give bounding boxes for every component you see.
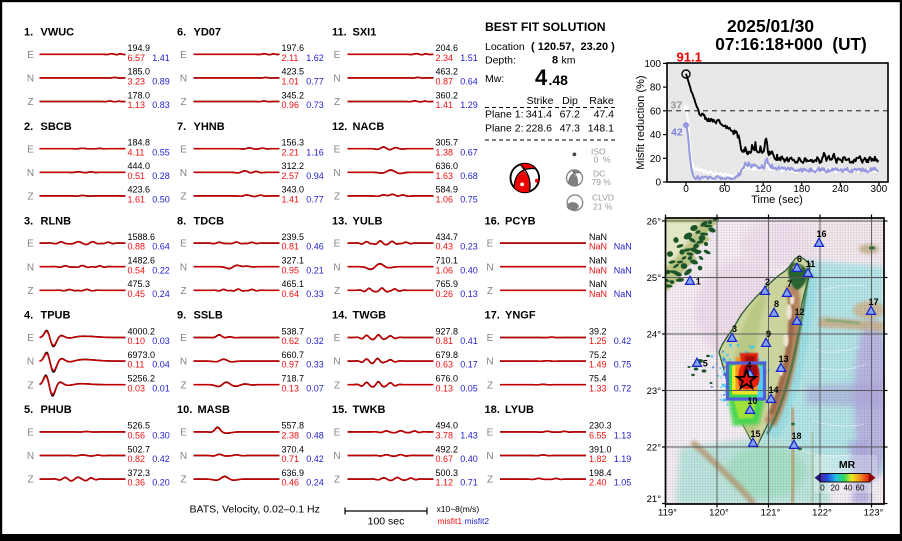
svg-text:E: E — [334, 333, 341, 344]
svg-text:148.1: 148.1 — [588, 123, 614, 135]
svg-text:Rake: Rake — [589, 95, 614, 107]
svg-text:370.4: 370.4 — [282, 444, 305, 454]
svg-text:679.8: 679.8 — [436, 350, 459, 360]
svg-text:0.95: 0.95 — [282, 265, 300, 275]
svg-text:0.03: 0.03 — [128, 383, 146, 393]
svg-text:676.0: 676.0 — [436, 374, 459, 384]
svg-text:Z: Z — [27, 475, 33, 486]
svg-text:0.77: 0.77 — [306, 195, 324, 205]
svg-text:765.9: 765.9 — [436, 279, 459, 289]
svg-text:1.41: 1.41 — [436, 100, 454, 110]
svg-text:80: 80 — [650, 83, 662, 94]
svg-text:0.94: 0.94 — [306, 171, 324, 181]
svg-text:230.3: 230.3 — [589, 421, 612, 431]
svg-text:15: 15 — [750, 429, 760, 439]
svg-text:NaN: NaN — [614, 265, 632, 275]
svg-text:Z: Z — [334, 380, 340, 391]
svg-text:0.13: 0.13 — [460, 289, 478, 299]
svg-text:492.2: 492.2 — [436, 444, 459, 454]
svg-text:Z: Z — [180, 286, 186, 297]
svg-text:22°: 22° — [647, 443, 662, 454]
svg-text:TWKB: TWKB — [353, 404, 386, 416]
svg-text:Strike: Strike — [527, 95, 554, 107]
svg-text:5: 5 — [703, 359, 708, 369]
svg-text:122°: 122° — [812, 508, 832, 519]
svg-text:YULB: YULB — [353, 215, 383, 227]
svg-text:0.24: 0.24 — [306, 478, 324, 488]
svg-text:N: N — [333, 74, 340, 85]
svg-text:204.6: 204.6 — [436, 43, 459, 53]
svg-text:Z: Z — [180, 97, 186, 108]
svg-text:6: 6 — [797, 254, 802, 264]
svg-text:18.: 18. — [485, 404, 500, 416]
svg-text:LYUB: LYUB — [505, 404, 534, 416]
svg-text:500.3: 500.3 — [436, 468, 459, 478]
svg-text:1.61: 1.61 — [128, 195, 146, 205]
svg-text:07:16:18+000 (UT): 07:16:18+000 (UT) — [715, 34, 866, 54]
svg-text:20: 20 — [831, 484, 840, 493]
svg-text:NaN: NaN — [589, 289, 607, 299]
svg-text:197.6: 197.6 — [282, 43, 305, 53]
svg-text:NACB: NACB — [353, 121, 385, 133]
svg-text:18: 18 — [791, 431, 801, 441]
svg-text:0.82: 0.82 — [128, 454, 146, 464]
svg-text:1.29: 1.29 — [460, 100, 478, 110]
svg-text:1.49: 1.49 — [589, 360, 607, 370]
svg-text:100: 100 — [644, 59, 661, 70]
svg-text:24°: 24° — [647, 330, 662, 341]
svg-text:E: E — [487, 239, 494, 250]
svg-text:Plane 2:: Plane 2: — [485, 123, 524, 135]
svg-text:E: E — [27, 144, 34, 155]
svg-text:BEST FIT SOLUTION: BEST FIT SOLUTION — [485, 20, 606, 34]
svg-text:8: 8 — [552, 55, 558, 67]
svg-text:75.2: 75.2 — [589, 350, 607, 360]
svg-text:E: E — [334, 144, 341, 155]
svg-text:16: 16 — [816, 229, 826, 239]
svg-text:1.51: 1.51 — [460, 53, 478, 63]
svg-text:NaN: NaN — [589, 279, 607, 289]
svg-text:42: 42 — [671, 127, 683, 139]
svg-text:40: 40 — [650, 130, 662, 141]
svg-text:343.0: 343.0 — [282, 185, 305, 195]
svg-text:N: N — [27, 451, 34, 462]
svg-text:1.06: 1.06 — [436, 265, 454, 275]
svg-text:2.40: 2.40 — [589, 478, 607, 488]
svg-text:1.16: 1.16 — [306, 147, 324, 157]
svg-text:502.7: 502.7 — [128, 444, 151, 454]
svg-text:0.24: 0.24 — [152, 289, 170, 299]
svg-text:misfit2: misfit2 — [465, 516, 490, 526]
svg-text:3.78: 3.78 — [436, 431, 454, 441]
svg-text:0.81: 0.81 — [436, 336, 454, 346]
svg-text:( 120.57, 23.20 ): ( 120.57, 23.20 ) — [531, 41, 615, 53]
svg-text:0.05: 0.05 — [460, 383, 478, 393]
svg-text:N: N — [333, 168, 340, 179]
svg-text:463.2: 463.2 — [436, 67, 459, 77]
svg-text:N: N — [333, 262, 340, 273]
svg-text:2.: 2. — [24, 121, 33, 133]
svg-text:E: E — [27, 50, 34, 61]
svg-text:4.11: 4.11 — [128, 147, 145, 157]
svg-text:475.3: 475.3 — [128, 279, 151, 289]
svg-text:7: 7 — [787, 279, 792, 289]
svg-text:BATS, Velocity, 0.02–0.1 Hz: BATS, Velocity, 0.02–0.1 Hz — [190, 504, 320, 516]
svg-text:MR: MR — [839, 459, 856, 471]
svg-text:8: 8 — [774, 299, 779, 309]
svg-text:0.45: 0.45 — [128, 289, 146, 299]
svg-text:9: 9 — [766, 329, 771, 339]
svg-text:0.10: 0.10 — [128, 336, 146, 346]
svg-text:0.54: 0.54 — [128, 265, 146, 275]
svg-text:228.6: 228.6 — [526, 123, 552, 135]
svg-text:423.6: 423.6 — [128, 185, 151, 195]
svg-text:E: E — [180, 428, 187, 439]
svg-text:SSLB: SSLB — [194, 310, 223, 322]
svg-text:1: 1 — [696, 277, 701, 287]
svg-text:345.2: 345.2 — [282, 90, 305, 100]
svg-text:N: N — [486, 451, 493, 462]
svg-text:Time (sec): Time (sec) — [751, 194, 803, 206]
svg-text:0.22: 0.22 — [152, 265, 170, 275]
svg-text:0.30: 0.30 — [152, 431, 170, 441]
svg-text:4: 4 — [746, 361, 751, 371]
svg-text:20: 20 — [650, 154, 662, 165]
svg-text:927.8: 927.8 — [436, 326, 459, 336]
svg-text:360.2: 360.2 — [436, 90, 459, 100]
svg-text:Location: Location — [485, 41, 525, 53]
svg-text:TDCB: TDCB — [194, 215, 225, 227]
svg-text:2.34: 2.34 — [436, 53, 454, 63]
svg-text:0.42: 0.42 — [152, 454, 170, 464]
svg-text:NaN: NaN — [589, 232, 607, 242]
svg-text:YNGF: YNGF — [505, 310, 536, 322]
svg-text:60: 60 — [719, 184, 731, 195]
svg-text:N: N — [27, 74, 34, 85]
svg-text:0.23: 0.23 — [460, 242, 478, 252]
svg-text:123°: 123° — [864, 508, 884, 519]
svg-text:misfit1: misfit1 — [438, 516, 463, 526]
svg-text:465.1: 465.1 — [282, 279, 305, 289]
svg-text:1.62: 1.62 — [306, 53, 324, 63]
svg-text:0.41: 0.41 — [460, 336, 478, 346]
svg-text:0.64: 0.64 — [460, 77, 478, 87]
svg-text:1.41: 1.41 — [152, 53, 170, 63]
svg-text:14.: 14. — [332, 310, 347, 322]
svg-text:2.21: 2.21 — [282, 147, 300, 157]
svg-text:75.4: 75.4 — [589, 374, 607, 384]
svg-text:47.3: 47.3 — [560, 123, 581, 135]
svg-text:1.82: 1.82 — [589, 454, 607, 464]
svg-text:6.: 6. — [177, 27, 186, 39]
svg-text:12.: 12. — [332, 121, 347, 133]
svg-text:636.0: 636.0 — [436, 161, 459, 171]
svg-text:1.38: 1.38 — [436, 147, 454, 157]
svg-text:12: 12 — [794, 307, 804, 317]
svg-text:0.77: 0.77 — [306, 77, 324, 87]
svg-text:N: N — [180, 357, 187, 368]
svg-text:0.20: 0.20 — [152, 478, 170, 488]
svg-text:0.96: 0.96 — [282, 100, 300, 110]
svg-text:156.3: 156.3 — [282, 138, 305, 148]
svg-text:0.72: 0.72 — [614, 383, 632, 393]
svg-text:198.4: 198.4 — [589, 468, 612, 478]
svg-text:6.57: 6.57 — [128, 53, 146, 63]
svg-text:0.04: 0.04 — [152, 360, 170, 370]
svg-text:1482.6: 1482.6 — [128, 256, 156, 266]
svg-text:4: 4 — [535, 65, 548, 90]
svg-text:0.33: 0.33 — [306, 360, 324, 370]
svg-text:1.: 1. — [24, 27, 33, 39]
svg-text:1.19: 1.19 — [614, 454, 632, 464]
svg-text:718.7: 718.7 — [282, 374, 305, 384]
svg-text:1.63: 1.63 — [436, 171, 454, 181]
svg-text:YHNB: YHNB — [194, 121, 225, 133]
svg-text:557.8: 557.8 — [282, 421, 305, 431]
svg-text:240: 240 — [832, 184, 849, 195]
svg-text:120°: 120° — [709, 508, 729, 519]
svg-text:0.87: 0.87 — [436, 77, 454, 87]
svg-text:0.81: 0.81 — [282, 242, 300, 252]
svg-text:0.26: 0.26 — [436, 289, 454, 299]
svg-text:119°: 119° — [658, 508, 677, 519]
svg-text:0: 0 — [820, 484, 825, 493]
svg-text:0 %: 0 % — [594, 155, 611, 165]
svg-text:14: 14 — [768, 385, 778, 395]
svg-text:79 %: 79 % — [592, 177, 612, 187]
svg-text:E: E — [180, 239, 187, 250]
svg-text:7.: 7. — [177, 121, 186, 133]
svg-text:SBCB: SBCB — [41, 121, 72, 133]
svg-text:Plane 1:: Plane 1: — [485, 109, 524, 121]
svg-text:0.40: 0.40 — [460, 454, 478, 464]
svg-text:341.4: 341.4 — [526, 109, 552, 121]
svg-text:660.7: 660.7 — [282, 350, 305, 360]
svg-text:TPUB: TPUB — [41, 310, 71, 322]
svg-text:444.0: 444.0 — [128, 161, 151, 171]
svg-text:10.: 10. — [177, 404, 192, 416]
svg-text:0.71: 0.71 — [282, 454, 300, 464]
svg-text:0.11: 0.11 — [128, 360, 145, 370]
svg-text:1.01: 1.01 — [282, 77, 300, 87]
svg-text:47.4: 47.4 — [594, 109, 615, 121]
svg-text:1.12: 1.12 — [436, 478, 454, 488]
svg-text:0.36: 0.36 — [128, 478, 146, 488]
svg-text:0.97: 0.97 — [282, 360, 300, 370]
svg-text:91.1: 91.1 — [677, 50, 702, 65]
svg-text:0.75: 0.75 — [614, 360, 632, 370]
svg-text:NaN: NaN — [589, 265, 607, 275]
svg-text:0.56: 0.56 — [128, 431, 146, 441]
svg-text:1.06: 1.06 — [436, 195, 454, 205]
svg-text:N: N — [486, 262, 493, 273]
svg-text:1.13: 1.13 — [128, 100, 146, 110]
svg-text:13.: 13. — [332, 215, 347, 227]
svg-text:1588.6: 1588.6 — [128, 232, 156, 242]
svg-text:0.01: 0.01 — [152, 383, 170, 393]
svg-text:17: 17 — [868, 297, 878, 307]
svg-text:185.0: 185.0 — [128, 67, 151, 77]
svg-text:16.: 16. — [485, 215, 500, 227]
svg-text:MASB: MASB — [198, 404, 230, 416]
svg-text:0.42: 0.42 — [306, 454, 324, 464]
svg-text:21 %: 21 % — [593, 202, 613, 212]
svg-text:0.67: 0.67 — [436, 454, 454, 464]
svg-text:11: 11 — [806, 259, 816, 269]
svg-text:Z: Z — [487, 286, 493, 297]
svg-text:N: N — [27, 168, 34, 179]
svg-text:538.7: 538.7 — [282, 326, 305, 336]
svg-text:Z: Z — [27, 192, 33, 203]
svg-text:1.33: 1.33 — [589, 383, 607, 393]
svg-text:NaN: NaN — [589, 242, 607, 252]
svg-text:0.64: 0.64 — [282, 289, 300, 299]
svg-text:23°: 23° — [647, 386, 662, 397]
svg-text:Z: Z — [27, 97, 33, 108]
svg-text:Z: Z — [334, 192, 340, 203]
svg-text:0.75: 0.75 — [460, 195, 478, 205]
svg-text:Z: Z — [334, 286, 340, 297]
svg-text:SXI1: SXI1 — [353, 27, 377, 39]
svg-text:6.55: 6.55 — [589, 431, 607, 441]
svg-text:0.46: 0.46 — [306, 242, 324, 252]
svg-text:0.48: 0.48 — [306, 431, 324, 441]
svg-text:0: 0 — [655, 178, 661, 189]
svg-text:0.89: 0.89 — [152, 77, 170, 87]
svg-text:327.1: 327.1 — [282, 256, 305, 266]
svg-text:E: E — [487, 428, 494, 439]
svg-text:.48: .48 — [549, 72, 569, 88]
svg-text:N: N — [180, 262, 187, 273]
svg-text:184.8: 184.8 — [128, 138, 151, 148]
svg-text:Z: Z — [334, 97, 340, 108]
svg-text:E: E — [180, 144, 187, 155]
svg-text:E: E — [334, 428, 341, 439]
svg-text:N: N — [27, 357, 34, 368]
svg-text:300: 300 — [871, 184, 888, 195]
svg-text:6973.0: 6973.0 — [128, 350, 156, 360]
svg-text:1.25: 1.25 — [589, 336, 607, 346]
svg-text:E: E — [27, 333, 34, 344]
svg-text:3.: 3. — [24, 215, 33, 227]
svg-text:N: N — [27, 262, 34, 273]
svg-text:E: E — [487, 333, 494, 344]
svg-text:YD07: YD07 — [194, 27, 222, 39]
svg-text:N: N — [333, 357, 340, 368]
svg-text:0.40: 0.40 — [460, 265, 478, 275]
svg-text:0.62: 0.62 — [282, 336, 300, 346]
svg-text:2.38: 2.38 — [282, 431, 300, 441]
svg-text:60: 60 — [856, 484, 865, 493]
svg-text:67.2: 67.2 — [560, 109, 581, 121]
svg-text:11.: 11. — [332, 27, 347, 39]
svg-text:40: 40 — [844, 484, 853, 493]
svg-text:1.05: 1.05 — [614, 478, 632, 488]
svg-text:N: N — [180, 451, 187, 462]
svg-text:178.0: 178.0 — [128, 90, 151, 100]
svg-text:584.9: 584.9 — [436, 185, 459, 195]
svg-text:1.13: 1.13 — [614, 431, 632, 441]
svg-text:2: 2 — [765, 277, 770, 287]
svg-text:26°: 26° — [647, 217, 662, 228]
svg-text:Z: Z — [487, 475, 493, 486]
svg-text:9.: 9. — [177, 310, 186, 322]
svg-text:0.68: 0.68 — [460, 171, 478, 181]
svg-text:0.51: 0.51 — [128, 171, 146, 181]
svg-text:0.63: 0.63 — [436, 360, 454, 370]
svg-text:2.57: 2.57 — [282, 171, 300, 181]
svg-text:PHUB: PHUB — [41, 404, 72, 416]
svg-text:0.43: 0.43 — [436, 242, 454, 252]
svg-text:0.88: 0.88 — [128, 242, 146, 252]
svg-text:1.41: 1.41 — [282, 195, 300, 205]
svg-text:60: 60 — [650, 106, 662, 117]
svg-text:E: E — [334, 239, 341, 250]
svg-text:VWUC: VWUC — [41, 27, 75, 39]
svg-text:2.11: 2.11 — [282, 53, 299, 63]
svg-text:0.03: 0.03 — [152, 336, 170, 346]
svg-text:3.23: 3.23 — [128, 77, 146, 87]
svg-text:121°: 121° — [761, 508, 781, 519]
svg-text:Z: Z — [27, 380, 33, 391]
svg-text:25°: 25° — [647, 273, 662, 284]
svg-text:372.3: 372.3 — [128, 468, 151, 478]
svg-text:E: E — [180, 50, 187, 61]
svg-text:0.73: 0.73 — [306, 100, 324, 110]
svg-text:0.46: 0.46 — [282, 478, 300, 488]
svg-text:Misfit reduction (%): Misfit reduction (%) — [635, 75, 647, 169]
svg-text:4.: 4. — [24, 310, 33, 322]
svg-text:100 sec: 100 sec — [368, 516, 405, 528]
svg-text:E: E — [27, 239, 34, 250]
svg-text:0.64: 0.64 — [152, 242, 170, 252]
svg-text:km: km — [562, 55, 576, 67]
svg-text:13: 13 — [778, 354, 788, 364]
svg-text:710.1: 710.1 — [436, 256, 459, 266]
svg-text:305.7: 305.7 — [436, 138, 459, 148]
svg-text:1.43: 1.43 — [460, 431, 478, 441]
svg-text:5256.2: 5256.2 — [128, 374, 156, 384]
svg-text:Z: Z — [27, 286, 33, 297]
svg-text:239.5: 239.5 — [282, 232, 305, 242]
svg-text:TWGB: TWGB — [353, 310, 387, 322]
svg-text:0.13: 0.13 — [436, 383, 454, 393]
svg-text:Z: Z — [180, 192, 186, 203]
svg-text:E: E — [27, 428, 34, 439]
svg-text:5.: 5. — [24, 404, 33, 416]
svg-text:Z: Z — [180, 380, 186, 391]
svg-text:NaN: NaN — [614, 289, 632, 299]
svg-text:494.0: 494.0 — [436, 421, 459, 431]
svg-text:21°: 21° — [647, 494, 662, 505]
svg-text:NaN: NaN — [589, 256, 607, 266]
svg-text:636.9: 636.9 — [282, 468, 305, 478]
svg-text:N: N — [486, 357, 493, 368]
svg-text:0.71: 0.71 — [460, 478, 478, 488]
svg-text:391.0: 391.0 — [589, 444, 612, 454]
svg-text:0.13: 0.13 — [282, 383, 300, 393]
svg-text:PCYB: PCYB — [505, 215, 536, 227]
svg-text:N: N — [180, 168, 187, 179]
svg-text:2025/01/30: 2025/01/30 — [727, 16, 814, 36]
svg-text:0.32: 0.32 — [306, 336, 324, 346]
svg-text:Dip: Dip — [562, 95, 578, 107]
svg-text:434.7: 434.7 — [436, 232, 459, 242]
svg-text:0.42: 0.42 — [614, 336, 632, 346]
svg-text:0.28: 0.28 — [152, 171, 170, 181]
svg-text:4000.2: 4000.2 — [128, 326, 156, 336]
svg-text:0.17: 0.17 — [460, 360, 478, 370]
